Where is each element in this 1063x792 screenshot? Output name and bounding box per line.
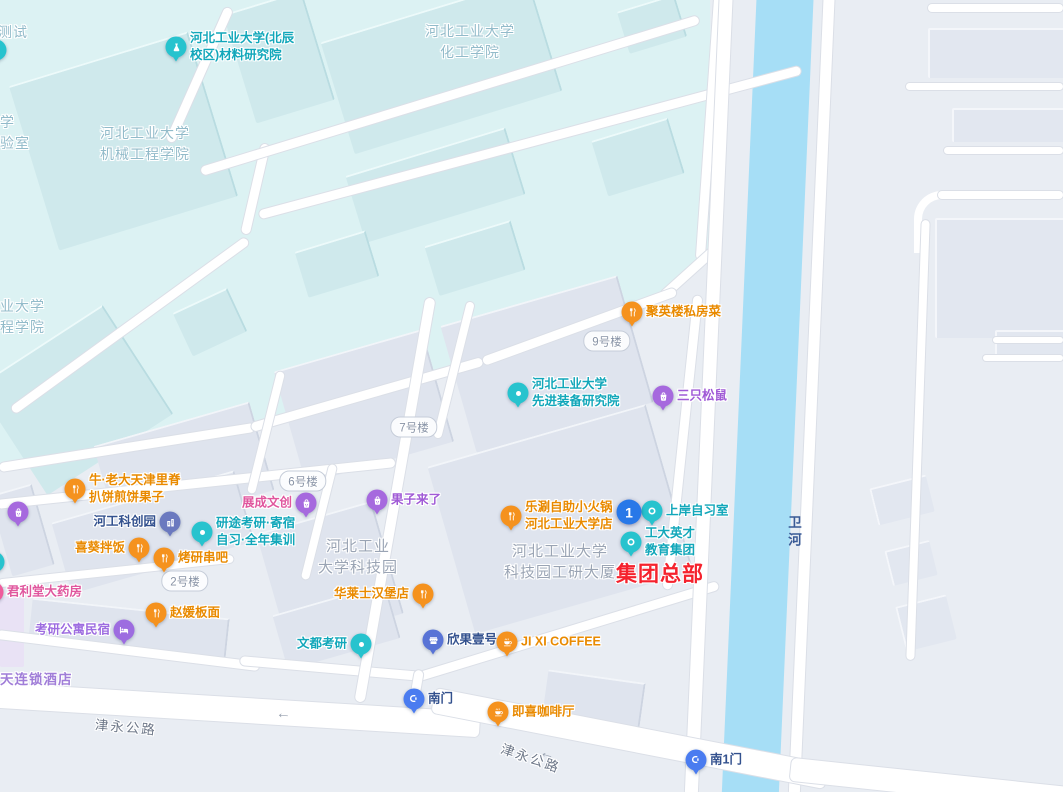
poi-label-kaoyan-chuanba[interactable]: 烤研串吧 — [178, 550, 228, 567]
dot-pin-icon[interactable] — [192, 522, 213, 543]
fork-pin-icon[interactable] — [65, 479, 86, 500]
building-pill-9: 9号楼 — [583, 331, 630, 352]
bag-pin-icon[interactable] — [653, 386, 674, 407]
poi-label-guozilaile[interactable]: 果子来了 — [391, 492, 441, 509]
poi-label-hegong-kechuangyuan[interactable]: 河工科创园 — [93, 514, 156, 531]
fork-pin-icon[interactable] — [501, 506, 522, 527]
area-label-keji-yuan: 河北工业 大学科技园 — [318, 536, 398, 578]
fork-pin-icon[interactable] — [622, 302, 643, 323]
dot-pin-icon[interactable] — [351, 634, 372, 655]
ring-pin-icon[interactable] — [621, 532, 642, 553]
building-pill-2: 2号楼 — [161, 571, 208, 592]
poi-label-sanzhisongshu[interactable]: 三只松鼠 — [677, 388, 727, 405]
poi-label-wendu-kaoyan[interactable]: 文都考研 — [297, 636, 347, 653]
poi-label-xinguo-yihao[interactable]: 欣果壹号 — [447, 632, 497, 649]
map-canvas[interactable]: 河北工业大学 机械工程学院 河北工业大学 化工学院 河北工业 大学科技园 河北工… — [0, 0, 1063, 792]
poi-label-junlitang-dayaofang[interactable]: 君利堂大药房 — [7, 584, 82, 601]
coffee-pin-icon[interactable] — [497, 632, 518, 653]
poi-label-niulaoda-jianbing[interactable]: 牛·老大天津里脊 扒饼煎饼果子 — [89, 472, 181, 506]
gate-pin-icon[interactable] — [404, 689, 425, 710]
road-segment — [928, 4, 1063, 12]
road-segment — [790, 758, 1063, 792]
poi-label-leshuan-zizhu-xiaohuoguo[interactable]: 乐涮自助小火锅 河北工业大学店 — [525, 499, 613, 533]
fork-pin-icon[interactable] — [146, 603, 167, 624]
area-label-gongyan-dasha: 河北工业大学 科技园工研大厦 — [504, 541, 616, 583]
bag-pin-icon[interactable] — [8, 502, 29, 523]
area-label-ceshi-partial: 测试 — [0, 22, 28, 43]
road-segment — [983, 355, 1063, 361]
fork-pin-icon[interactable] — [413, 584, 434, 605]
river-label: 卫河 — [783, 515, 803, 550]
poi-label-cailiao-yanjiuyuan[interactable]: 河北工业大学(北辰 校区)材料研究院 — [190, 30, 294, 64]
building-block — [952, 108, 1063, 142]
building-block — [995, 330, 1063, 358]
poi-label-kaoyan-gongyu-minsu[interactable]: 考研公寓民宿 — [35, 622, 110, 639]
pin-tail — [659, 404, 668, 411]
road-segment — [938, 191, 1063, 199]
poi-label-juyinglou-sifangcai[interactable]: 聚英楼私房菜 — [646, 304, 721, 321]
road-direction-arrow: ← — [275, 705, 291, 721]
building-pill-6: 6号楼 — [279, 471, 326, 492]
poi-label-jixi-coffee[interactable]: JI XI COFFEE — [521, 634, 601, 651]
area-label-hotel-partial: 天连锁酒店 — [0, 669, 73, 690]
building-block — [895, 594, 957, 651]
bag-pin-icon[interactable] — [296, 493, 317, 514]
road-segment — [906, 83, 1063, 90]
gate-pin-icon[interactable] — [686, 750, 707, 771]
fork-pin-icon[interactable] — [154, 548, 175, 569]
pin-tail — [429, 648, 438, 655]
area-label-huagong: 河北工业大学 化工学院 — [425, 21, 515, 63]
pin-tail — [302, 511, 311, 518]
area-label-yanshi-partial: 学 验室 — [0, 112, 30, 154]
coffee-pin-icon[interactable] — [488, 702, 509, 723]
road-label-jinyong-1: 津永公路 — [94, 713, 158, 738]
poi-label-xikui-banfan[interactable]: 喜葵拌饭 — [75, 540, 125, 557]
poi-label-zhancheng-wenchuang[interactable]: 展成文创 — [242, 495, 292, 512]
area-label-xueyuan-partial: 业大学 程学院 — [0, 296, 45, 338]
building-block — [928, 28, 1063, 78]
poi-label-yantu-kaoyan[interactable]: 研途考研·寄宿 自习·全年集训 — [216, 515, 295, 549]
area-label-jixie: 河北工业大学 机械工程学院 — [100, 123, 190, 165]
bag-pin-icon[interactable] — [367, 490, 388, 511]
poi-label-jixi-kafeiting[interactable]: 即喜咖啡厅 — [512, 704, 575, 721]
poi-label-shangan-zixishi[interactable]: 上岸自习室 — [666, 503, 729, 520]
highlighted-poi-label[interactable]: 集团总部 — [616, 558, 704, 588]
flask-pin-icon[interactable] — [166, 37, 187, 58]
road-segment — [993, 337, 1063, 343]
road-segment — [240, 656, 422, 681]
bed-pin-icon[interactable] — [114, 620, 135, 641]
poi-label-hualaishi-hanbaodian[interactable]: 华莱士汉堡店 — [334, 586, 409, 603]
poi-label-xianjin-zhuangbei-yanjiuyuan[interactable]: 河北工业大学 先进装备研究院 — [532, 376, 620, 410]
poi-label-zhaoyuan-banmian[interactable]: 赵媛板面 — [170, 605, 220, 622]
fork-pin-icon[interactable] — [129, 538, 150, 559]
dot-pin-icon[interactable] — [0, 552, 5, 573]
pin-tail — [419, 602, 428, 609]
building-pin-icon[interactable] — [160, 512, 181, 533]
building-pill-7: 7号楼 — [390, 417, 437, 438]
building-block — [869, 475, 934, 526]
poi-label-nanmen[interactable]: 南门 — [428, 691, 453, 708]
poi-label-gongda-yingcai-jiaoyu[interactable]: 工大英才 教育集团 — [645, 525, 695, 559]
numbered-marker-icon[interactable]: 1 — [617, 500, 642, 525]
ring-pin-icon[interactable] — [642, 501, 663, 522]
shopfront-pin-icon[interactable] — [423, 630, 444, 651]
poi-label-nan1men[interactable]: 南1门 — [710, 752, 742, 769]
road-segment — [906, 220, 929, 660]
road-segment — [944, 147, 1063, 154]
dot-pin-icon[interactable] — [508, 383, 529, 404]
